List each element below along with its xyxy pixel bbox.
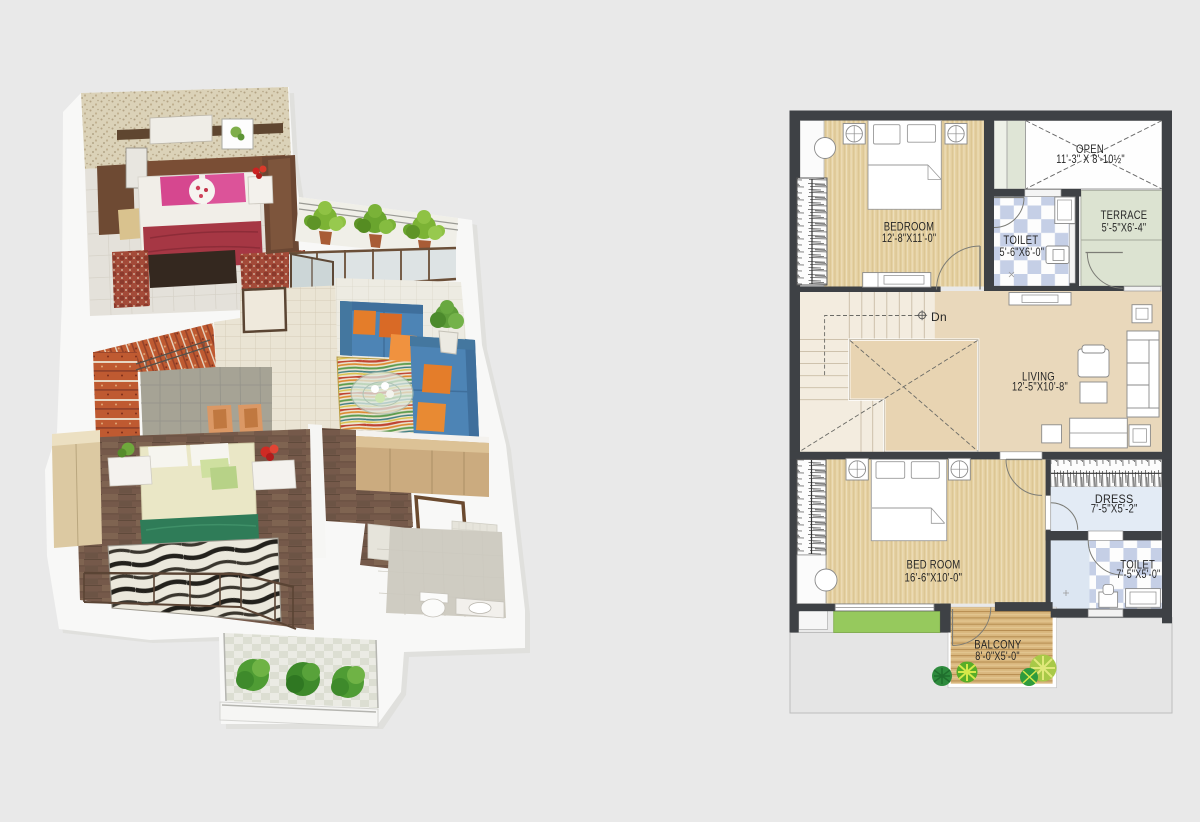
svg-text:7'-5"X5'-2": 7'-5"X5'-2" [1091, 501, 1138, 515]
svg-text:8'-0"X5'-0": 8'-0"X5'-0" [975, 649, 1020, 663]
svg-text:11'-3" X 8'-10½": 11'-3" X 8'-10½" [1056, 152, 1125, 166]
svg-text:5'-5"X6'-4": 5'-5"X6'-4" [1102, 221, 1147, 235]
svg-text:12'-8"X11'-0": 12'-8"X11'-0" [882, 231, 936, 245]
svg-text:Dn: Dn [931, 310, 947, 324]
svg-text:7'-5"X5'-0": 7'-5"X5'-0" [1116, 567, 1160, 581]
svg-text:16'-6"X10'-0": 16'-6"X10'-0" [905, 570, 963, 584]
svg-text:5'-6"X6'-0": 5'-6"X6'-0" [1000, 245, 1045, 259]
svg-text:12'-5"X10'-8": 12'-5"X10'-8" [1012, 379, 1068, 393]
